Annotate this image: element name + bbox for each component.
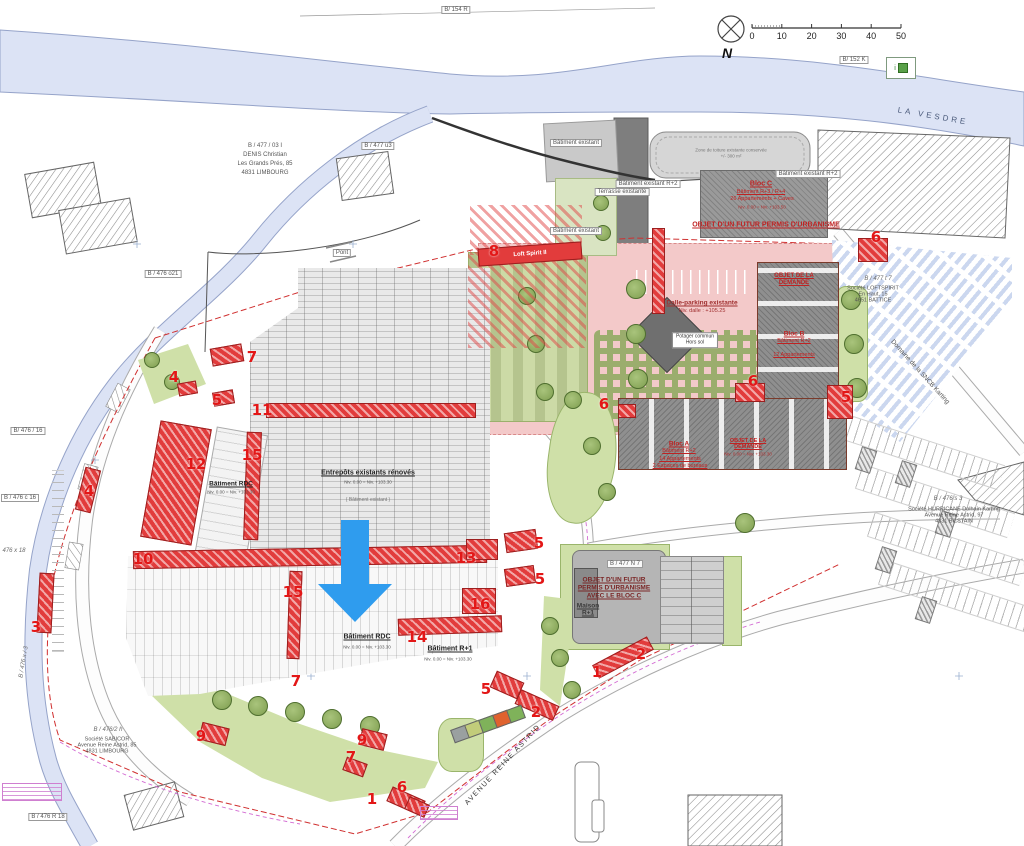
potager-box: Potager commun Hors sol [672, 332, 718, 348]
work-marker-8: 8 [489, 242, 499, 260]
parcel-label: B/ 476 / 16 [10, 427, 45, 435]
work-marker-1: 1 [367, 790, 377, 808]
tree-icon [144, 352, 160, 368]
tree-icon [563, 681, 581, 699]
parcel-label: B/ 154 R [441, 6, 470, 14]
renovation-marker [618, 404, 636, 418]
bloc-b-l2: 12 Appartements [773, 352, 815, 358]
work-marker-12: 12 [186, 455, 207, 473]
work-marker-6: 6 [397, 778, 407, 796]
parcel-label: B / 476 R 18 [28, 813, 67, 821]
renovation-marker [266, 403, 476, 418]
tree-icon [593, 195, 609, 211]
existing-building-label: Bâtiment existant R+2 [616, 180, 681, 188]
work-marker-3: 3 [31, 618, 41, 636]
tree-icon [735, 513, 755, 533]
work-marker-6: 6 [748, 372, 758, 390]
work-marker-2: 2 [531, 703, 541, 721]
garages-building [660, 556, 724, 644]
work-marker-5: 5 [534, 534, 544, 552]
existing-building-label: Terrasse existante [595, 188, 650, 196]
futur-l3: AVEC LE BLOC C [587, 593, 641, 600]
bloc-a-building [618, 398, 847, 470]
scalebar-tick-label: 20 [807, 31, 817, 41]
work-marker-13: 13 [456, 549, 477, 567]
legend-icon-box: i [886, 57, 916, 79]
parcel-label: B / 477 t 7 [864, 276, 891, 282]
tree-icon [583, 437, 601, 455]
renovation-marker [652, 228, 665, 314]
tree-icon [551, 649, 569, 667]
north-compass-icon [718, 16, 744, 42]
parcel-label: B / 477 N 7 [607, 560, 643, 568]
existing-building-label: Bâtiment existant R+2 [776, 170, 841, 178]
parcel-label: Pont [333, 249, 351, 257]
tree-icon [626, 324, 646, 344]
work-marker-5: 5 [212, 391, 222, 409]
work-marker-6: 6 [871, 228, 881, 246]
work-marker-5: 5 [841, 388, 851, 406]
scalebar-tick-label: 0 [749, 31, 754, 41]
potager-line2: Hors sol [676, 340, 714, 346]
tree-icon [248, 696, 268, 716]
bloc-b-title: Bloc B [784, 331, 805, 338]
tree-icon [541, 617, 559, 635]
roof-note-l1: Zone de toiture existante conservée [695, 148, 767, 153]
tree-icon [844, 334, 864, 354]
parcel-label: B / 476/2 h [93, 727, 122, 733]
tree-icon [212, 690, 232, 710]
parcel-label: B / 476 s 3 [934, 496, 963, 502]
tree-icon [536, 383, 554, 401]
info-icon: i [894, 65, 896, 72]
futur-l1: OBJET D'UN FUTUR [583, 577, 646, 584]
parcel-label: B / 476 o21 [145, 270, 182, 278]
bloc-b-objet1: OBJET DE LA [774, 273, 814, 279]
tree-icon [626, 279, 646, 299]
work-marker-16: 16 [470, 595, 491, 613]
batiment-rdc2-niv: Niv. 0.00 = Niv. +103.30 [343, 645, 391, 650]
green-garage-strip [722, 556, 742, 646]
bloc-c-niv: Niv. 0.00 = Niv. +103.50 [738, 205, 786, 210]
parcel-label: B/ 152 K [839, 56, 868, 64]
work-marker-14: 14 [407, 628, 428, 646]
bloc-c-title: Bloc C [750, 181, 772, 188]
bloc-c-objet: OBJET D'UN FUTUR PERMIS D'URBANISME [692, 222, 840, 229]
site-plan: Loft Spirit II LA VESDRE AVENUE REINE AS… [0, 0, 1024, 846]
warehouse-title: Entrepôts existants rénovés [321, 470, 415, 477]
demolition-hatch-garden [468, 252, 586, 348]
work-marker-7: 7 [247, 348, 257, 366]
parcel-label: B / 477 u3 [361, 142, 394, 150]
tree-icon [598, 483, 616, 501]
tree-icon [564, 391, 582, 409]
work-marker-2: 2 [636, 645, 646, 663]
futur-l2: PERMIS D'URBANISME [578, 585, 650, 592]
work-marker-9: 9 [357, 731, 367, 749]
warehouse-niv: Niv. 0.00 = Niv. +103.30 [344, 480, 392, 485]
bloc-a-l3: 2 Espaces de bureaux [653, 463, 708, 469]
work-marker-5: 5 [481, 680, 491, 698]
tree-icon [285, 702, 305, 722]
work-marker-10: 10 [133, 550, 154, 568]
maison-sub: R+1 [582, 610, 594, 617]
batiment-rdc1-title: Bâtiment RDC [209, 481, 253, 488]
owner-denis-street: Les Grands Prés, 85 [237, 161, 292, 167]
dalle-title: Dalle-parking existante [666, 300, 737, 307]
bloc-a-l1: Bâtiment R+2 [662, 448, 695, 454]
work-marker-4: 4 [169, 368, 179, 386]
batiment-rdc2-title: Bâtiment RDC [343, 634, 390, 641]
warehouse-note: ( Bâtiment existant ) [346, 497, 390, 503]
work-marker-11: 11 [252, 401, 273, 419]
bloc-b-objet2: DEMANDE [779, 280, 809, 286]
tree-icon [322, 709, 342, 729]
parcel-label: 476 x 18 [2, 548, 25, 554]
bloc-a-objet2: DEMANDE [734, 444, 762, 450]
legend-note-box [2, 783, 62, 801]
batiment-r1-title: Bâtiment R+1 [428, 646, 473, 653]
bloc-b-l1: Bâtiment R+2 [777, 338, 810, 344]
owner-hurricane-city: 4831 BILSTAIN [935, 519, 973, 525]
work-marker-1: 1 [592, 663, 602, 681]
parcel-label: B / 476 c 16 [1, 494, 39, 502]
work-marker-15: 15 [283, 583, 304, 601]
bloc-a-title: Bloc A [669, 441, 689, 448]
work-marker-9: 9 [196, 727, 206, 745]
work-marker-7: 7 [291, 672, 301, 690]
work-marker-7: 7 [346, 748, 356, 766]
bloc-a-niv: Niv. 0.00 = Niv. +103.30 [724, 452, 772, 457]
work-marker-6: 6 [599, 395, 609, 413]
loft-band-label: Loft Spirit II [513, 250, 547, 258]
bloc-a-l2: 14 Appartements [659, 456, 701, 462]
owner-sabicor-city: 4831 LIMBOURG [85, 749, 128, 755]
green-area-icon [898, 63, 908, 73]
work-marker-5: 5 [535, 570, 545, 588]
existing-white-buildings [575, 762, 604, 842]
owner-denis-city: 4831 LIMBOURG [241, 170, 288, 176]
scalebar-tick-label: 40 [866, 31, 876, 41]
scalebar-tick-label: 50 [896, 31, 906, 41]
bloc-c-l1: Bâtiment R+3 / R+4 [737, 189, 785, 195]
maison-title: Maison [577, 603, 599, 610]
scalebar-tick-label: 10 [777, 31, 787, 41]
work-marker-4: 4 [84, 482, 94, 500]
scale-bar [752, 24, 901, 28]
batiment-rdc1-niv: Niv. 0.00 = Niv. +103.30 [207, 490, 255, 495]
tree-icon [628, 369, 648, 389]
north-label: N [722, 45, 732, 61]
dalle-niv: Niv. dalle : +105.25 [679, 308, 726, 314]
batiment-r1-niv: Niv. 0.00 = Niv. +103.30 [424, 657, 472, 662]
owner-loftspirit-city: 4651 BATTICE [855, 298, 892, 304]
work-marker-15: 15 [242, 446, 263, 464]
scalebar-tick-label: 30 [836, 31, 846, 41]
existing-building-label: Bâtiment existant [550, 139, 602, 147]
roof-note-l2: +/- 300 m² [721, 154, 742, 159]
bloc-c-l2: 26 Appartements + Caves [730, 196, 793, 202]
legend-note-box [420, 806, 458, 820]
owner-denis-name: DENIS Christian [243, 152, 287, 158]
parking-row-left [52, 470, 64, 652]
owner-denis-parcel: B / 477 / 03 I [248, 143, 282, 149]
existing-building-label: Bâtiment existant [550, 227, 602, 235]
